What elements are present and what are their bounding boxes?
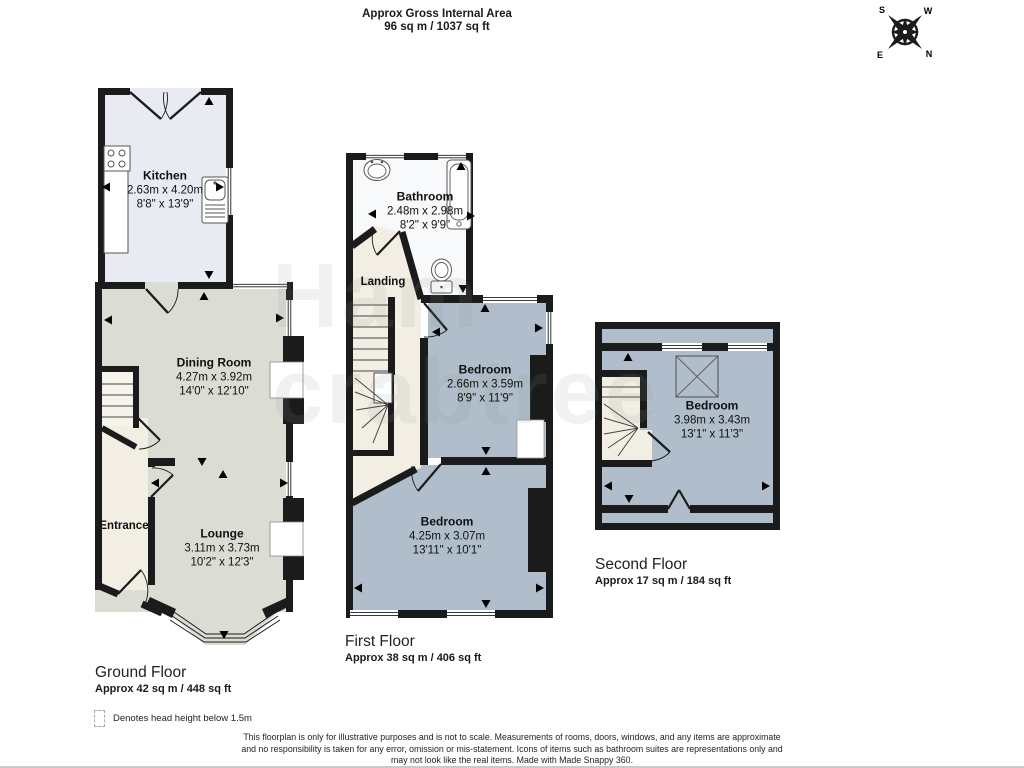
dining-imperial: 14'0" x 12'10" [176, 384, 252, 399]
gross-internal-area-header: Approx Gross Internal Area 96 sq m / 103… [362, 8, 512, 34]
header-line2: 96 sq m / 1037 sq ft [362, 21, 512, 34]
landing-name: Landing [361, 275, 406, 290]
header-line1: Approx Gross Internal Area [362, 8, 512, 21]
first-floor-title: First Floor [345, 633, 415, 651]
room-label-bathroom: Bathroom 2.48m x 2.98m 8'2" x 9'9" [387, 189, 463, 233]
bathroom-metric: 2.48m x 2.98m [387, 204, 463, 219]
bedroom-second-metric: 3.98m x 3.43m [674, 413, 750, 428]
bedroom-rear-imperial: 8'9" x 11'9" [447, 391, 523, 406]
lounge-imperial: 10'2" x 12'3" [184, 555, 259, 570]
kitchen-metric: 2.63m x 4.20m [127, 183, 203, 198]
bedroom-front-name: Bedroom [409, 514, 485, 529]
second-floor-area: Approx 17 sq m / 184 sq ft [595, 575, 731, 587]
compass-n: N [926, 49, 933, 59]
first-floor-area: Approx 38 sq m / 406 sq ft [345, 652, 481, 664]
disclaimer-line3: may not look like the real items. Made w… [0, 755, 1024, 767]
compass-w: W [924, 6, 933, 16]
room-label-dining: Dining Room 4.27m x 3.92m 14'0" x 12'10" [176, 355, 252, 399]
disclaimer-line2: and no responsibility is taken for any e… [0, 744, 1024, 756]
room-label-bedroom-second: Bedroom 3.98m x 3.43m 13'1" x 11'3" [674, 398, 750, 442]
floorplan-page: Ham crabtree Approx Gross Internal Area … [0, 0, 1024, 768]
dining-metric: 4.27m x 3.92m [176, 370, 252, 385]
room-label-landing: Landing [361, 275, 406, 290]
disclaimer: This floorplan is only for illustrative … [0, 732, 1024, 767]
head-height-legend-text: Denotes head height below 1.5m [113, 713, 252, 724]
bedroom-rear-name: Bedroom [447, 362, 523, 377]
bathroom-name: Bathroom [387, 189, 463, 204]
room-label-lounge: Lounge 3.11m x 3.73m 10'2" x 12'3" [184, 526, 259, 570]
bedroom-rear-metric: 2.66m x 3.59m [447, 377, 523, 392]
bedroom-second-name: Bedroom [674, 398, 750, 413]
second-floor-title: Second Floor [595, 556, 687, 574]
dining-name: Dining Room [176, 355, 252, 370]
disclaimer-line1: This floorplan is only for illustrative … [0, 732, 1024, 744]
compass-icon: S W N E [865, 0, 945, 66]
bathroom-imperial: 8'2" x 9'9" [387, 218, 463, 233]
bedroom-second-imperial: 13'1" x 11'3" [674, 427, 750, 442]
lounge-name: Lounge [184, 526, 259, 541]
head-height-legend: Denotes head height below 1.5m [94, 710, 252, 727]
room-label-bedroom-front: Bedroom 4.25m x 3.07m 13'11" x 10'1" [409, 514, 485, 558]
bedroom-front-metric: 4.25m x 3.07m [409, 529, 485, 544]
room-label-bedroom-rear: Bedroom 2.66m x 3.59m 8'9" x 11'9" [447, 362, 523, 406]
compass-s: S [879, 5, 885, 15]
entrance-name: Entrance [99, 519, 148, 534]
head-height-legend-icon [94, 710, 105, 727]
compass-e: E [877, 50, 883, 60]
kitchen-imperial: 8'8" x 13'9" [127, 197, 203, 212]
room-label-entrance: Entrance [99, 519, 148, 534]
ground-floor-area: Approx 42 sq m / 448 sq ft [95, 683, 231, 695]
room-label-kitchen: Kitchen 2.63m x 4.20m 8'8" x 13'9" [127, 168, 203, 212]
kitchen-name: Kitchen [127, 168, 203, 183]
ground-floor-title: Ground Floor [95, 664, 186, 682]
bedroom-front-imperial: 13'11" x 10'1" [409, 543, 485, 558]
lounge-metric: 3.11m x 3.73m [184, 541, 259, 556]
